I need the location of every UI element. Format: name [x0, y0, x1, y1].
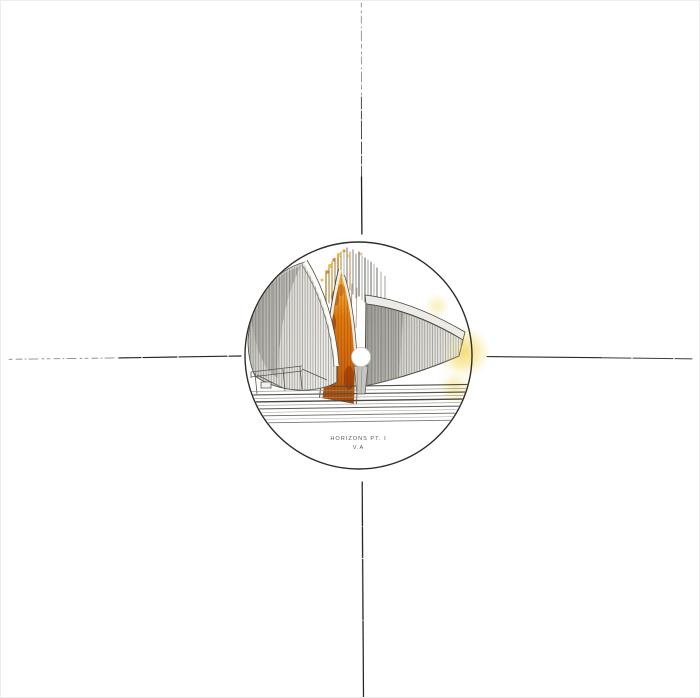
crosshair-left-line [9, 356, 241, 359]
crosshair-bottom-line [362, 482, 364, 698]
crosshair-top-line [361, 3, 362, 234]
yellow-glow-overlay [441, 332, 481, 372]
crosshair-right-line [487, 357, 692, 359]
label-title: HORIZONS PT. I [330, 436, 386, 442]
record-label: HORIZONS PT. I V.A [231, 228, 486, 483]
record-sleeve: HORIZONS PT. I V.A [0, 0, 700, 698]
label-subtitle: V.A [353, 445, 365, 451]
spindle-hole [351, 347, 370, 366]
